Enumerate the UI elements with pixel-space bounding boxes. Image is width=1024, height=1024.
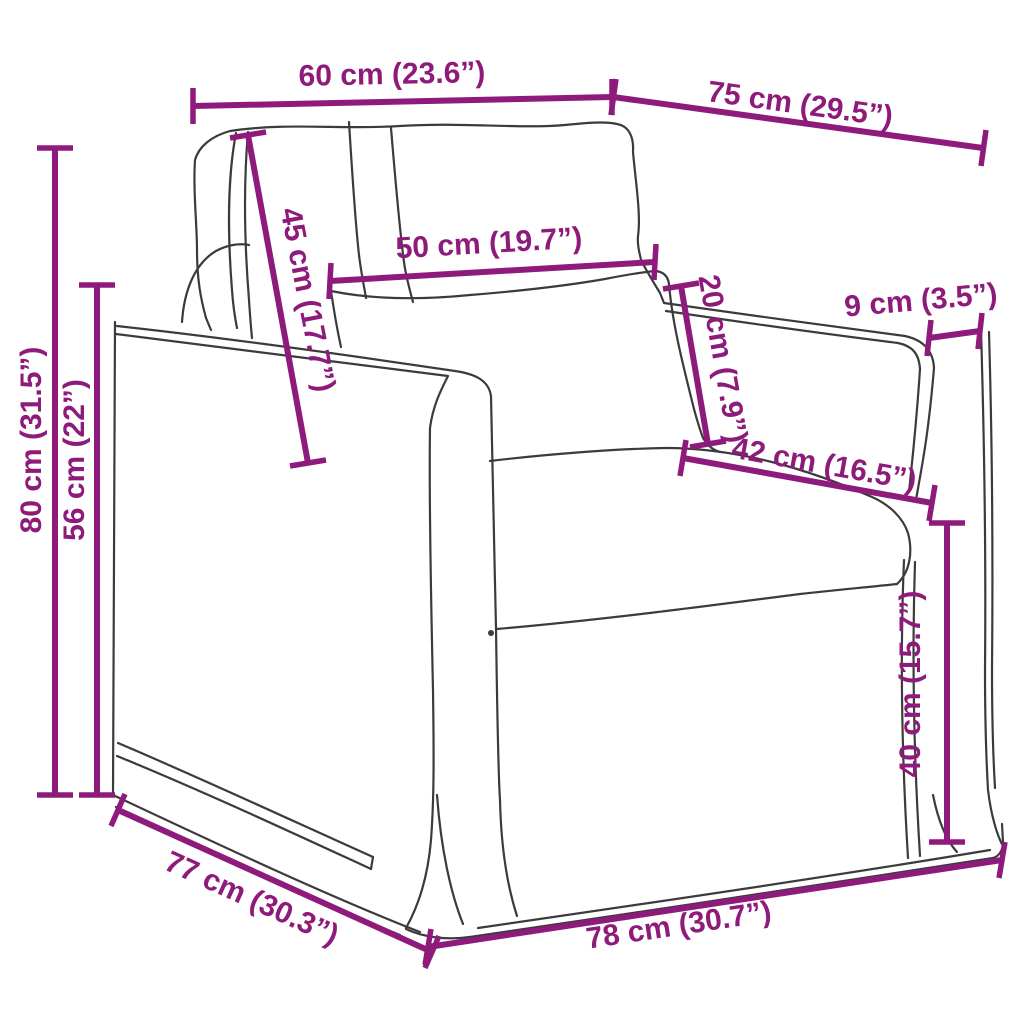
dim-50-tick-end <box>654 244 656 280</box>
dim-60-label: 60 cm (23.6”) <box>298 56 485 93</box>
left-arm-outer-edge <box>113 322 115 795</box>
dim-9-tick-start <box>927 320 931 356</box>
left-arm-top-inner <box>116 334 448 928</box>
dim-60-line <box>193 97 612 106</box>
diagram-canvas: 60 cm (23.6”) 75 cm (29.5”) 80 cm (31.5”… <box>0 0 1024 1024</box>
dim-backrest-top-width-60cm: 60 cm (23.6”) <box>193 56 612 124</box>
dim-9-line <box>929 331 980 338</box>
back-cushion-piping-1 <box>229 133 237 328</box>
dim-45-tick-end <box>290 460 326 466</box>
dim-56-label: 56 cm (22”) <box>58 379 91 541</box>
dim-50-tick-start <box>329 263 331 299</box>
left-panel-band-bottom <box>117 756 371 869</box>
dim-75-tick-end <box>981 130 986 166</box>
dim-top-depth-75cm: 75 cm (29.5”) <box>611 75 986 166</box>
armchair-dimension-diagram: 60 cm (23.6”) 75 cm (29.5”) 80 cm (31.5”… <box>0 0 1024 1024</box>
dim-50-label: 50 cm (19.7”) <box>395 222 583 266</box>
dimension-annotations: 60 cm (23.6”) 75 cm (29.5”) 80 cm (31.5”… <box>15 56 1005 968</box>
seat-corner-dot <box>488 630 494 636</box>
dim-42-tick-start <box>680 440 686 476</box>
left-panel-band-top <box>118 743 373 857</box>
dim-78-label: 78 cm (30.7”) <box>584 895 774 956</box>
dim-armrest-height-56cm: 56 cm (22”) <box>58 285 115 795</box>
seat-bottom-edge <box>497 584 897 629</box>
dim-80-label: 80 cm (31.5”) <box>15 347 48 534</box>
dim-78-tick-end <box>999 842 1005 878</box>
dim-9-label: 9 cm (3.5”) <box>843 277 999 323</box>
left-arm-top-outer <box>117 326 517 916</box>
left-pleat-fold <box>437 795 463 924</box>
dim-base-front-width-78cm: 78 cm (30.7”) <box>425 842 1005 965</box>
back-cushion-outline <box>194 131 230 330</box>
dim-seat-cushion-width-50cm: 50 cm (19.7”) <box>329 222 656 299</box>
right-arm-outer-b <box>989 332 995 788</box>
dim-40-label: 40 cm (15.7”) <box>894 591 927 778</box>
dim-back-cushion-length-45cm: 45 cm (17.7”) <box>230 132 342 466</box>
dim-42-label: 42 cm (16.5”) <box>729 432 919 498</box>
back-frame-arc <box>182 244 249 322</box>
dim-42-tick-end <box>929 485 935 521</box>
dim-cushion-thickness-20cm: 20 cm (7.9”) <box>663 272 754 447</box>
left-panel-band-end <box>371 857 373 869</box>
dim-armrest-width-9cm: 9 cm (3.5”) <box>843 277 999 356</box>
dim-base-depth-77cm: 77 cm (30.3”) <box>111 794 439 968</box>
back-cushion-crease-1 <box>349 122 366 298</box>
dim-77-line <box>118 810 432 952</box>
